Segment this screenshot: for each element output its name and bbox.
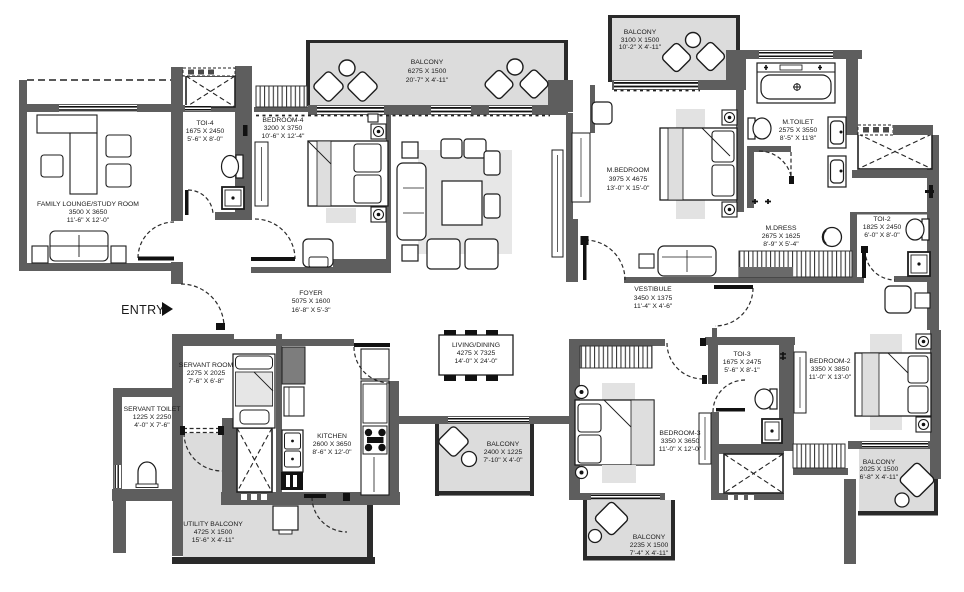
svg-text:6'-8" X 4'-11": 6'-8" X 4'-11" [860, 474, 899, 481]
svg-text:7'-6" X 6'-8": 7'-6" X 6'-8" [188, 378, 224, 385]
svg-text:5075 X 1600: 5075 X 1600 [292, 298, 331, 305]
svg-text:TOI-2: TOI-2 [873, 216, 890, 223]
svg-text:11'-0" X 13'-0": 11'-0" X 13'-0" [809, 374, 852, 381]
svg-text:BEDROOM-4: BEDROOM-4 [262, 117, 303, 124]
svg-text:7'-4" X 4'-11": 7'-4" X 4'-11" [630, 550, 669, 557]
svg-text:1225 X 2250: 1225 X 2250 [133, 414, 172, 421]
svg-text:8'-6" X 12'-0": 8'-6" X 12'-0" [312, 449, 352, 456]
svg-text:M.BEDROOM: M.BEDROOM [607, 167, 650, 174]
svg-text:BALCONY: BALCONY [633, 534, 666, 541]
svg-text:3200 X 3750: 3200 X 3750 [264, 125, 303, 132]
svg-text:ENTRY: ENTRY [121, 303, 165, 317]
svg-text:3350 X 3850: 3350 X 3850 [811, 366, 850, 373]
svg-text:7'-10" X 4'-0": 7'-10" X 4'-0" [483, 457, 523, 464]
svg-text:TOI-4: TOI-4 [196, 120, 213, 127]
svg-text:8'-5" X 11'8": 8'-5" X 11'8" [780, 135, 817, 142]
svg-text:BALCONY: BALCONY [411, 59, 444, 66]
svg-text:BEDROOM-3: BEDROOM-3 [659, 430, 700, 437]
svg-text:16'-8" X 5'-3": 16'-8" X 5'-3" [291, 307, 331, 314]
svg-text:2025 X 1500: 2025 X 1500 [860, 466, 899, 473]
svg-text:1825 X 2450: 1825 X 2450 [863, 224, 902, 231]
svg-text:6275 X 1500: 6275 X 1500 [408, 68, 447, 75]
svg-text:5'-6" X 8'-1": 5'-6" X 8'-1" [724, 367, 760, 374]
svg-text:6'-0" X 8'-0": 6'-0" X 8'-0" [864, 232, 900, 239]
svg-text:3450 X 1375: 3450 X 1375 [634, 295, 673, 302]
svg-text:M.TOILET: M.TOILET [782, 119, 813, 126]
svg-text:LIVING/DINING: LIVING/DINING [452, 342, 500, 349]
svg-text:M.DRESS: M.DRESS [766, 225, 797, 232]
svg-text:VESTIBULE: VESTIBULE [634, 286, 672, 293]
svg-text:BALCONY: BALCONY [863, 459, 896, 466]
svg-text:1675 X 2475: 1675 X 2475 [723, 359, 762, 366]
svg-text:BALCONY: BALCONY [487, 441, 520, 448]
svg-text:KITCHEN: KITCHEN [317, 433, 347, 440]
svg-text:SERVANT ROOM: SERVANT ROOM [179, 362, 234, 369]
svg-text:2235 X 1500: 2235 X 1500 [630, 542, 669, 549]
svg-text:2400 X 1225: 2400 X 1225 [484, 449, 523, 456]
svg-text:1675 X 2450: 1675 X 2450 [186, 128, 225, 135]
svg-text:4'-0" X 7'-6": 4'-0" X 7'-6" [134, 422, 170, 429]
svg-text:11'-6" X 12'-0": 11'-6" X 12'-0" [67, 217, 110, 224]
svg-text:TOI-3: TOI-3 [733, 351, 750, 358]
svg-text:2575 X 3550: 2575 X 3550 [779, 127, 818, 134]
svg-text:BEDROOM-2: BEDROOM-2 [809, 358, 850, 365]
svg-text:FAMILY LOUNGE/STUDY ROOM: FAMILY LOUNGE/STUDY ROOM [37, 201, 139, 208]
svg-text:15'-6" X 4'-11": 15'-6" X 4'-11" [192, 537, 235, 544]
svg-text:10'-6" X 12'-4": 10'-6" X 12'-4" [262, 133, 306, 140]
svg-text:SERVANT TOILET: SERVANT TOILET [124, 406, 181, 413]
svg-text:3100 X 1500: 3100 X 1500 [621, 37, 660, 44]
svg-text:4725 X 1500: 4725 X 1500 [194, 529, 233, 536]
svg-text:4275 X 7325: 4275 X 7325 [457, 350, 496, 357]
svg-text:UTILITY BALCONY: UTILITY BALCONY [183, 521, 243, 528]
svg-text:8'-9" X 5'-4": 8'-9" X 5'-4" [763, 241, 799, 248]
svg-text:5'-6" X 8'-0": 5'-6" X 8'-0" [187, 136, 223, 143]
svg-text:BALCONY: BALCONY [624, 29, 657, 36]
svg-text:10'-2" X 4'-11": 10'-2" X 4'-11" [619, 44, 662, 51]
svg-text:2675 X 1625: 2675 X 1625 [762, 233, 801, 240]
svg-text:2600 X 3650: 2600 X 3650 [313, 441, 352, 448]
svg-text:14'-0" X 24'-0": 14'-0" X 24'-0" [455, 358, 499, 365]
svg-text:3975 X 4675: 3975 X 4675 [609, 176, 648, 183]
svg-text:3350 X 3650: 3350 X 3650 [661, 438, 700, 445]
svg-text:11'-4" X 4'-6": 11'-4" X 4'-6" [634, 303, 673, 310]
svg-text:13'-0" X 15'-0": 13'-0" X 15'-0" [607, 185, 651, 192]
svg-text:2275 X 2025: 2275 X 2025 [187, 370, 226, 377]
svg-text:11'-0" X 12'-0": 11'-0" X 12'-0" [659, 446, 702, 453]
svg-text:FOYER: FOYER [299, 290, 323, 297]
svg-text:3500 X 3650: 3500 X 3650 [69, 209, 108, 216]
svg-text:20'-7" X 4'-11": 20'-7" X 4'-11" [406, 77, 449, 84]
